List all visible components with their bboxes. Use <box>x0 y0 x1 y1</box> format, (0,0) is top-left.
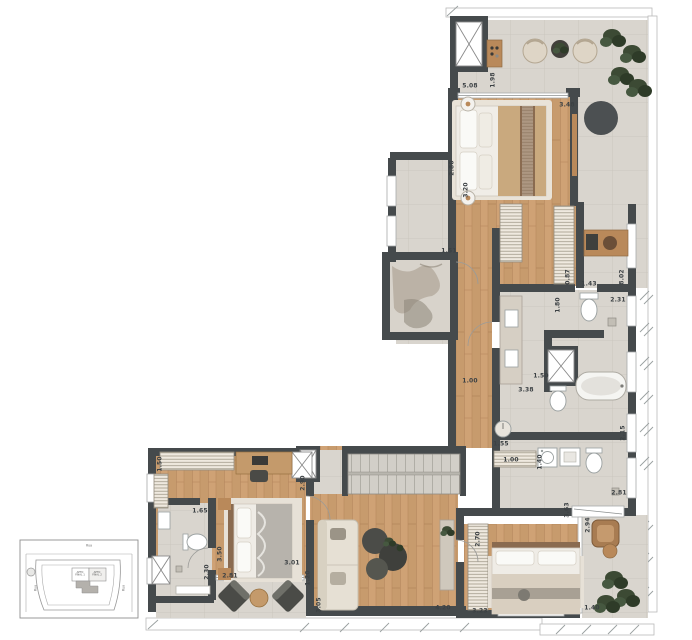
throw-pillow <box>330 572 346 585</box>
nightstand <box>218 568 231 580</box>
shaft-x-bath <box>548 350 574 382</box>
sofa <box>318 520 358 610</box>
sink <box>158 512 170 529</box>
private-hall <box>382 252 458 340</box>
plant-table <box>551 40 569 58</box>
throw-pillow <box>330 528 346 540</box>
shower-drain <box>176 566 182 572</box>
bathtub <box>576 372 626 400</box>
closet <box>160 452 234 470</box>
wardrobe <box>554 206 574 284</box>
terrace-armchair <box>573 39 597 63</box>
sideboard <box>440 520 455 590</box>
toilet <box>183 534 207 550</box>
bed <box>228 504 292 578</box>
key-plan-street-top: Rua <box>86 544 92 548</box>
bath-bench <box>176 586 210 594</box>
tv-cabinet <box>572 114 577 176</box>
key-plan-street-right: Rua <box>122 585 126 591</box>
roundabout <box>27 568 35 576</box>
shaft-x-top <box>456 22 482 66</box>
sink <box>505 310 518 327</box>
washer <box>538 448 557 467</box>
shaft-x-bedroom2 <box>292 452 312 478</box>
terrace-armchair <box>523 39 547 63</box>
stair-rail <box>348 472 460 475</box>
terrace-table <box>250 589 268 607</box>
key-plan-street-left: Rua <box>34 585 38 591</box>
shower-drain <box>608 318 616 326</box>
bed-stool <box>518 589 530 601</box>
toilet <box>586 448 602 473</box>
wardrobe <box>500 204 522 262</box>
staircase <box>348 454 460 494</box>
linen-shelf <box>494 451 536 467</box>
floor-plan-sheet: Rua Rua Rua APTOFINAL 1 APTOFINAL 2 5.08… <box>0 0 692 640</box>
key-plan-unit-2-label: APTOFINAL 2 <box>92 571 102 576</box>
master-bed <box>456 106 546 196</box>
toilet <box>580 293 598 321</box>
closet <box>468 524 488 610</box>
nightstand <box>218 498 231 510</box>
round-coffee-table <box>584 101 618 135</box>
balcony-side-table <box>603 544 617 558</box>
laundry-wc-floor <box>500 434 628 510</box>
double-vanity <box>500 296 522 384</box>
monitor <box>252 456 268 465</box>
shower-drain <box>612 488 619 495</box>
desk-chair <box>250 470 268 482</box>
desk-stool <box>603 236 617 250</box>
key-plan-unit-1-label: APTOFINAL 1 <box>75 571 85 576</box>
bar-cart <box>487 40 502 67</box>
bed <box>492 542 580 614</box>
sink <box>505 350 518 367</box>
desk-chair <box>586 234 598 250</box>
toilet <box>550 386 566 411</box>
closet <box>154 474 168 508</box>
